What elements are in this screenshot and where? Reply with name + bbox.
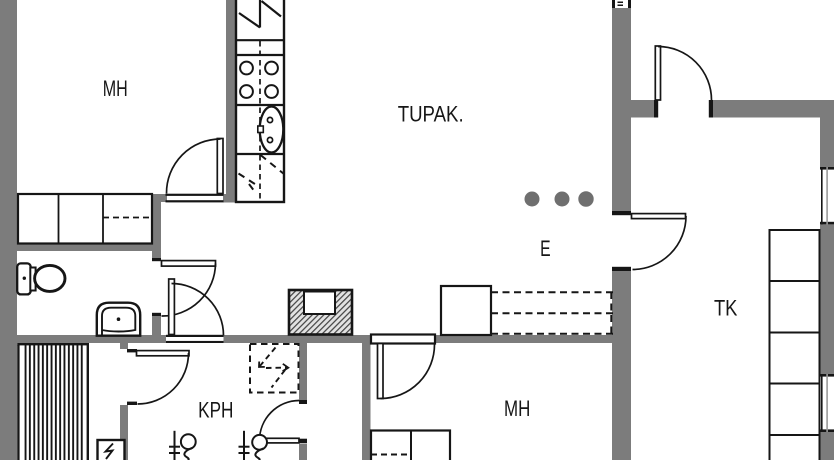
svg-text:TK: TK [714, 295, 738, 320]
svg-text:E: E [540, 236, 551, 261]
svg-text:KPH: KPH [198, 398, 233, 423]
svg-text:MH: MH [103, 76, 128, 101]
svg-text:MH: MH [504, 396, 530, 421]
svg-text:TUPAK.: TUPAK. [398, 102, 464, 127]
